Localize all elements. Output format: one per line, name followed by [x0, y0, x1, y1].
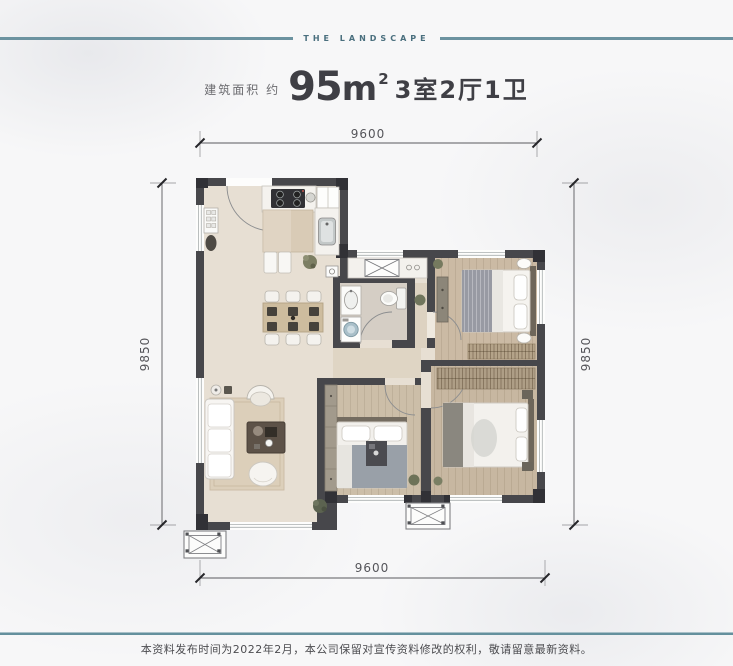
washing-machine-hatch [365, 260, 399, 277]
footer-rule [0, 632, 733, 635]
living-bottom-window [230, 522, 312, 530]
nightstand [522, 462, 533, 471]
bathroom-sink [341, 286, 361, 315]
entry-window [196, 205, 204, 251]
dimension-left: 9850 [138, 179, 176, 530]
floorplan-page: THE LANDSCAPE 建筑面积 约95m23室2厅1卫 [0, 0, 733, 666]
coffee-table [247, 422, 285, 453]
brand-rule-right [440, 37, 733, 40]
laundry-top-window [357, 250, 403, 258]
sofa [205, 399, 234, 479]
bedroom2-wardrobe [325, 385, 337, 491]
master-top-window [458, 250, 505, 258]
shoe-cabinet [204, 208, 218, 233]
dimension-bottom: 9600 [196, 560, 550, 586]
living-plant [313, 499, 327, 513]
master-wardrobe [468, 344, 535, 359]
laundry-area [348, 258, 427, 278]
corridor-floor [333, 348, 421, 378]
dimension-top: 9600 [196, 127, 542, 157]
bedroom3-bed [443, 399, 534, 470]
bedroom3-plant [434, 477, 443, 486]
corridor-plant [409, 475, 420, 486]
area-label: 建筑面积 约 [204, 83, 280, 97]
bedroom2-window [348, 495, 404, 503]
floor-drain [326, 266, 338, 277]
brand-title: THE LANDSCAPE [293, 34, 439, 43]
dimension-top-label: 9600 [351, 127, 386, 141]
dining-set [263, 291, 323, 345]
rooms-label: 3室2厅1卫 [395, 76, 529, 104]
dimension-left-label: 9850 [138, 337, 152, 372]
living-window [196, 378, 204, 463]
floor-plan: 9600 9600 9850 9850 [125, 105, 615, 590]
prep-sink [306, 193, 315, 202]
kitchen-sink [319, 218, 336, 245]
bedroom2-bed [337, 417, 407, 488]
nightstand [517, 259, 531, 269]
master-plant [433, 259, 443, 269]
kitchen-island [263, 210, 313, 252]
hall-plant [415, 295, 426, 306]
ac-platform-middle [406, 503, 450, 529]
washer [341, 317, 361, 342]
master-dresser [437, 277, 448, 322]
brand-header: THE LANDSCAPE [0, 34, 733, 43]
master-bed [462, 266, 536, 336]
pouf [249, 462, 277, 486]
dimension-bottom-label: 9600 [355, 561, 390, 575]
entry-coat [206, 235, 217, 251]
dimension-right-label: 9850 [579, 337, 593, 372]
bedroom3-bottom-window [450, 495, 502, 503]
area-number: 95 [288, 64, 342, 110]
stove [271, 189, 305, 208]
bedroom3-right-window [537, 420, 545, 472]
nightstand [522, 390, 533, 399]
dimension-right: 9850 [562, 179, 593, 530]
area-unit: m [342, 69, 377, 109]
ac-platform-left [184, 531, 226, 558]
bedroom3-wardrobe [437, 368, 535, 389]
brand-rule-left [0, 37, 293, 40]
nightstand [517, 333, 531, 343]
plan-title: 建筑面积 约95m23室2厅1卫 [0, 64, 733, 110]
master-right-window [537, 270, 545, 324]
disclaimer-text: 本资料发布时间为2022年2月，本公司保留对宣传资料修改的权利，敬请留意最新资料… [0, 641, 733, 657]
kitchen-plant [303, 255, 317, 269]
hall-strip-floor [413, 283, 427, 348]
area-exponent: 2 [378, 70, 388, 88]
